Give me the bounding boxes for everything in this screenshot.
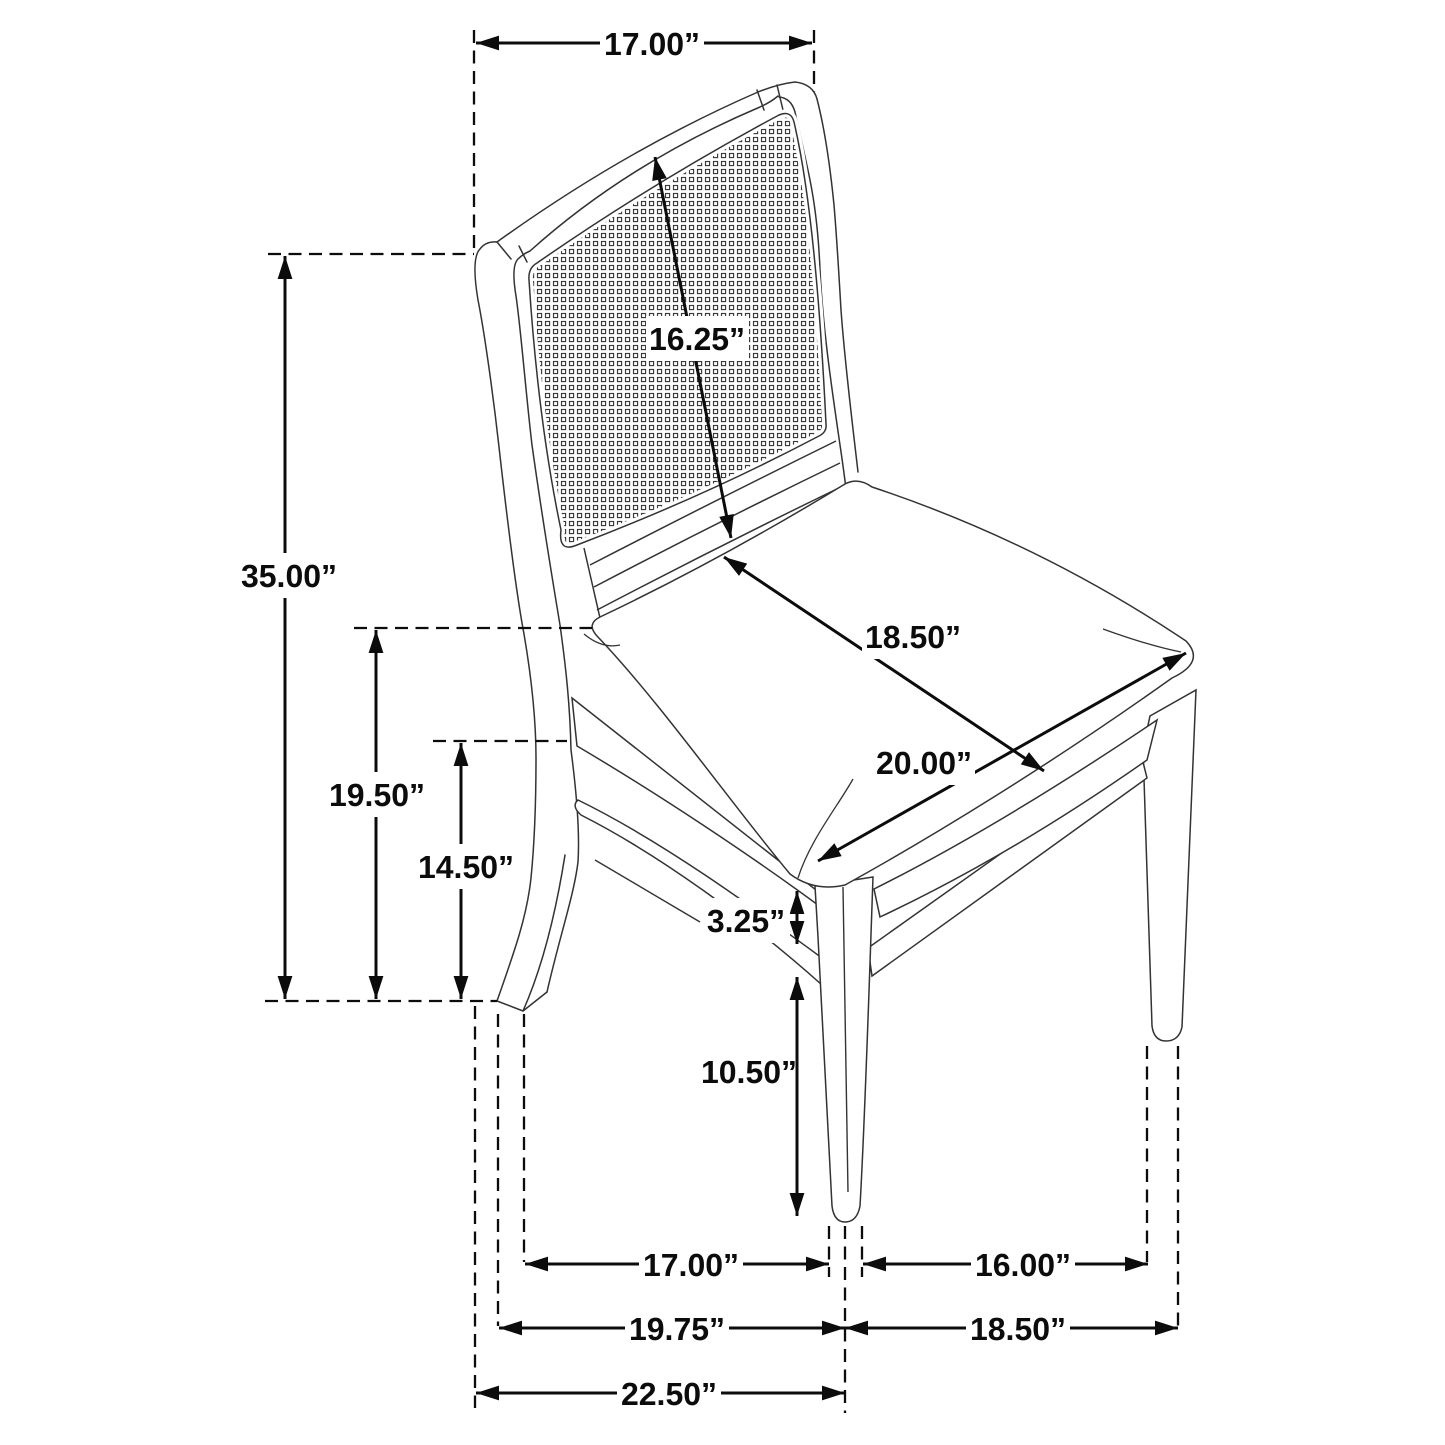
svg-text:18.50”: 18.50” [970,1311,1066,1347]
svg-text:14.50”: 14.50” [418,849,514,885]
svg-text:19.75”: 19.75” [629,1311,725,1347]
svg-text:3.25”: 3.25” [707,903,785,939]
svg-text:22.50”: 22.50” [621,1376,717,1412]
svg-text:16.00”: 16.00” [975,1247,1071,1283]
svg-text:18.50”: 18.50” [865,619,961,655]
svg-text:19.50”: 19.50” [329,777,425,813]
svg-text:35.00”: 35.00” [241,558,337,594]
svg-text:17.00”: 17.00” [604,26,700,62]
svg-text:10.50”: 10.50” [701,1054,797,1090]
svg-text:20.00”: 20.00” [876,745,972,781]
svg-text:17.00”: 17.00” [643,1247,739,1283]
svg-text:16.25”: 16.25” [649,321,745,357]
